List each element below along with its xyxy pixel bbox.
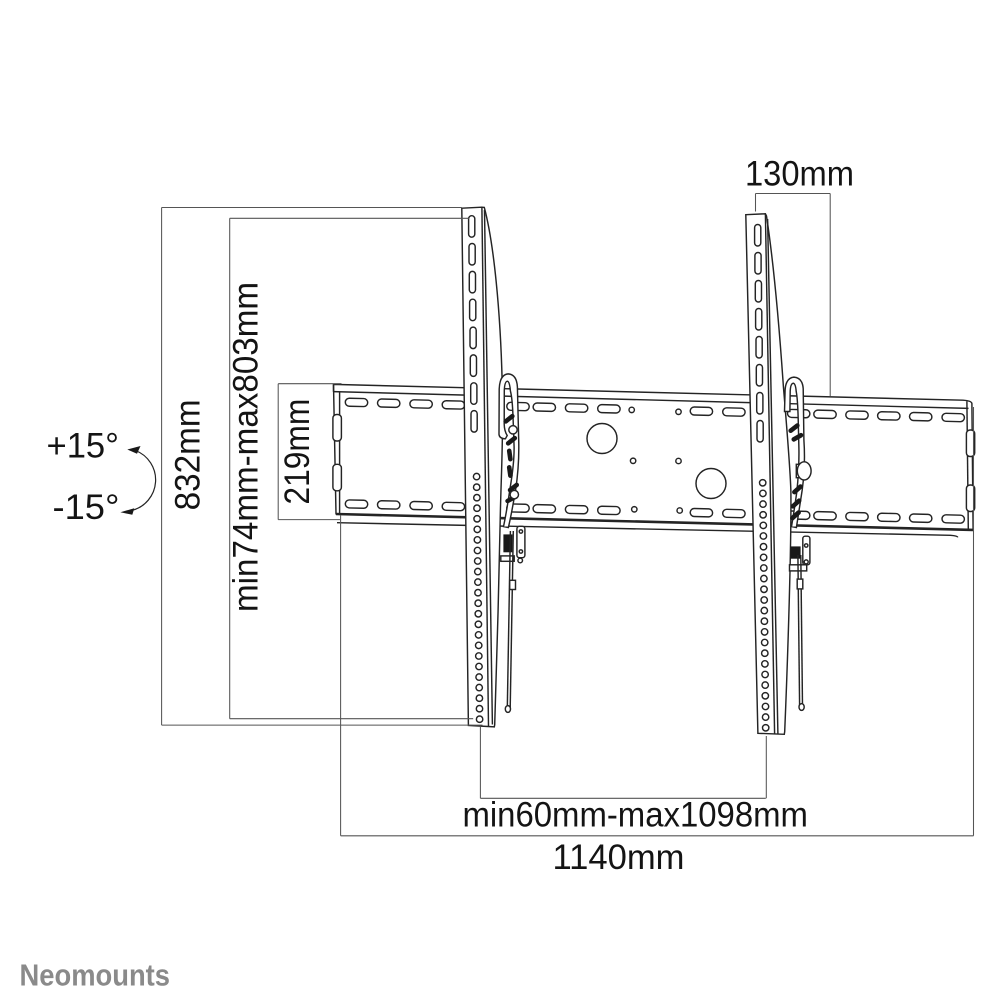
svg-text:min60mm-max1098mm: min60mm-max1098mm — [462, 796, 808, 835]
svg-text:1140mm: 1140mm — [553, 838, 685, 877]
svg-text:min74mm-max803mm: min74mm-max803mm — [227, 282, 266, 612]
svg-text:219mm: 219mm — [278, 399, 317, 505]
svg-text:+15°: +15° — [47, 427, 120, 466]
svg-text:-15°: -15° — [53, 488, 120, 527]
svg-text:832mm: 832mm — [169, 399, 208, 510]
svg-text:Neomounts: Neomounts — [20, 959, 171, 993]
svg-text:130mm: 130mm — [745, 155, 854, 194]
